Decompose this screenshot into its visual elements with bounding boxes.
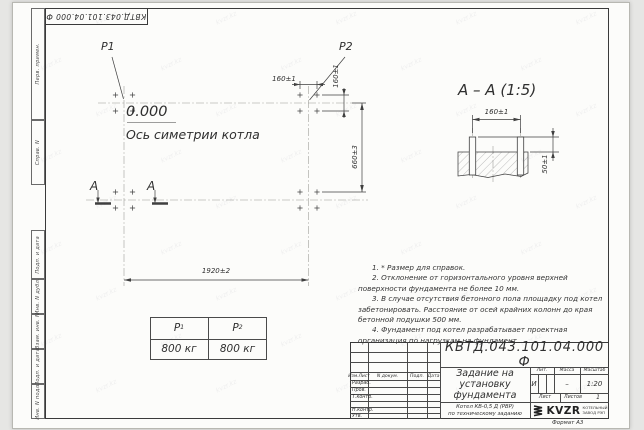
tb-company-line2: ЗАВОД РЭП (583, 411, 608, 415)
spring-logo-icon (532, 405, 545, 417)
tb-row-utv: Утв. (350, 413, 368, 419)
boiler-symmetry-axis-label: Ось симетрии котла (126, 127, 260, 142)
margin-box-vzam-inv: Взам. инв. N (31, 314, 45, 349)
tb-header-ndocum: N докум. (368, 372, 407, 380)
tb-company-name: КОТЕЛЬНЫЙ ЗАВОД РЭП (583, 406, 608, 415)
dim-1920: 1920±2 (186, 267, 246, 275)
load-table-header-p1: P1 (150, 317, 208, 338)
dim-160-side: 160±1 (332, 58, 340, 94)
margin-box-sprav-n: Справ. N (31, 120, 45, 185)
tb-product-line2: по техническому заданию (448, 411, 522, 418)
margin-label: Справ. N (35, 140, 41, 165)
load-point-label-p1: P1 (101, 40, 115, 53)
margin-label: Подп. и дата (35, 348, 41, 386)
level-mark: 0.000 (126, 104, 168, 120)
section-dim-height: 50±1 (541, 146, 549, 182)
tb-designation: КВТД.043.101.04.000 Ф (440, 342, 609, 367)
p2-sub: 2 (239, 324, 243, 331)
drawing-sheet-page: Перв. примен. Справ. N Подп. и дата Инв.… (0, 0, 644, 430)
tb-scale-label: Масштаб (580, 367, 609, 374)
load-table-value-p1: 800 кг (150, 338, 208, 360)
margin-box-perv-primen: Перв. примен. (31, 8, 45, 120)
tb-row-prov: Пров. (350, 387, 368, 394)
margin-box-podp-data-1: Подп. и дата (31, 230, 45, 279)
tb-sheet-label: Лист (530, 393, 560, 402)
note-2: 2. Отклонение от горизонтального уровня … (358, 273, 608, 294)
section-view-title: А – А (1:5) (458, 81, 536, 99)
tb-mass-value: – (554, 374, 580, 393)
tb-sheets-label: Листов (562, 393, 588, 402)
load-point-label-p2: P2 (339, 40, 353, 53)
designation-rotated: КВТД.043.101.04.000 Ф (46, 12, 146, 21)
margin-label: Взам. инв. N (35, 313, 41, 349)
margin-label: Инв. N дубл. (35, 278, 41, 314)
tb-product: Котел КВ-0,5 Д (РВР) по техническому зад… (440, 402, 530, 419)
load-table-value-p2: 800 кг (208, 338, 267, 360)
tb-logo-text: KVZR (547, 405, 581, 417)
tb-document-name: Задание на установку фундамента (440, 367, 530, 402)
dim-160-top: 160±1 (266, 75, 302, 83)
tb-header-izm-list: Изм.Лист (350, 372, 368, 380)
tb-lit-value: И (530, 374, 538, 393)
note-3: 3. В случае отсутствия бетонного пола пл… (358, 294, 608, 325)
top-rotated-designation-stamp: КВТД.043.101.04.000 Ф (45, 8, 148, 25)
technical-notes: 1. * Размер для справок. 2. Отклонение о… (358, 263, 608, 346)
margin-box-inv-podl: Инв. N подл. (31, 384, 45, 419)
tb-scale-value: 1:20 (580, 374, 609, 393)
note-1: 1. * Размер для справок. (358, 263, 608, 273)
p1-sub: 1 (180, 324, 184, 331)
tb-row-tkontr: Т.контр. (350, 394, 368, 401)
tb-format: Формат А3 (552, 420, 583, 426)
margin-label: Перв. примен. (35, 43, 41, 84)
margin-box-podp-data-2: Подп. и дата (31, 349, 45, 384)
tb-row-razrab: Разраб. (350, 380, 368, 387)
tb-lit-label: Лит. (530, 367, 554, 374)
tb-header-data: Дата (427, 372, 440, 380)
section-letter-a1: А (90, 179, 98, 193)
tb-sheets-value: 1 (590, 393, 606, 402)
section-dim-width: 160±1 (476, 108, 517, 116)
section-letter-a2: А (147, 179, 155, 193)
margin-label: Подп. и дата (35, 236, 41, 274)
margin-box-inv-dubl: Инв. N дубл. (31, 279, 45, 314)
margin-label: Инв. N подл. (35, 383, 41, 420)
tb-mass-label: Масса (554, 367, 580, 374)
dim-660: 660±3 (351, 139, 359, 175)
load-table-header-p2: P2 (208, 317, 267, 338)
tb-company: KVZR КОТЕЛЬНЫЙ ЗАВОД РЭП (530, 402, 609, 419)
tb-header-podp: Подп. (407, 372, 427, 380)
